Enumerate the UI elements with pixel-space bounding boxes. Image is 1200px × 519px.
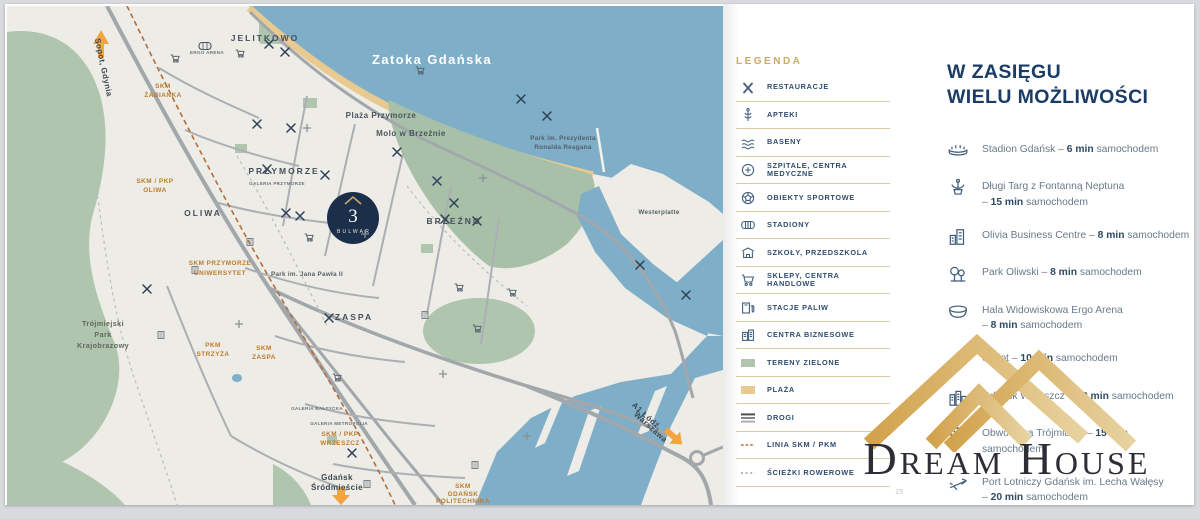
poi-item-text: Olivia Business Centre – 8 min samochode… — [982, 228, 1189, 243]
skm-line-swatch — [740, 437, 756, 453]
map-panel: 3 BULWAR Zatoka GdańskaPlaża PrzymorzeMo… — [7, 6, 723, 505]
poi-tpk-3: Krajobrazowy — [77, 341, 129, 350]
station-zabianka-1: SKM — [155, 83, 171, 90]
district-zaspa: ZASPA — [335, 312, 373, 322]
bike-line-swatch — [740, 465, 756, 481]
legend-item: SZPITALE, CENTRA MEDYCZNE — [736, 157, 890, 185]
roads-swatch — [740, 410, 756, 426]
city-icon — [947, 387, 969, 409]
interchange-icon — [947, 424, 969, 446]
sport-icon — [740, 190, 756, 206]
station-strzyza-1: PKM — [205, 342, 221, 349]
arena-icon — [947, 301, 969, 323]
pier-icon — [947, 349, 969, 371]
station-oliwa-1: SKM / PKP — [136, 178, 173, 185]
poi-item-text: Obwodnica Trójmiasta – 15 min samochodem — [982, 426, 1190, 457]
city-icon — [947, 387, 969, 409]
legend-item: LINIA SKM / PKM — [736, 432, 890, 460]
park-icon — [947, 263, 969, 285]
legend-item: SZKOŁY, PRZEDSZKOLA — [736, 239, 890, 267]
offices-icon — [947, 226, 969, 248]
sport-icon — [740, 190, 756, 206]
caduceus-icon — [740, 107, 756, 123]
legend-item-label: DROGI — [767, 414, 794, 422]
poi-park-reagana-2: Ronalda Reagana — [534, 144, 592, 151]
park-icon — [947, 263, 969, 285]
legend-title: LEGENDA — [736, 56, 890, 67]
legend-item-label: BASENY — [767, 138, 802, 146]
school-icon — [740, 245, 756, 261]
poi-item: Sopot – 10 min samochodem — [947, 351, 1190, 371]
poi-park-jana-pawla: Park im. Jana Pawła II — [271, 271, 343, 278]
legend-item-label: PLAŻA — [767, 386, 795, 394]
medical-icon — [740, 162, 756, 178]
poi-item-text: Sopot – 10 min samochodem — [982, 351, 1118, 366]
development-number: 3 — [348, 206, 358, 227]
legend-item-label: OBIEKTY SPORTOWE — [767, 194, 855, 202]
station-zaspa-1: SKM — [256, 345, 272, 352]
cart-icon — [740, 272, 756, 288]
medical-icon — [740, 162, 756, 178]
legend-item: STADIONY — [736, 212, 890, 240]
station-wrzeszcz-2: WRZESZCZ — [320, 440, 360, 447]
stadium-icon — [740, 217, 756, 233]
poi-westerplatte: Westerplatte — [638, 209, 679, 216]
legend-items: RESTAURACJEAPTEKIBASENYSZPITALE, CENTRA … — [736, 74, 890, 487]
beach-swatch — [740, 382, 756, 398]
poi-item: Park Oliwski – 8 min samochodem — [947, 265, 1190, 285]
development-marker: 3 BULWAR — [327, 192, 379, 244]
station-strzyza-2: STRZYŻA — [197, 349, 230, 358]
legend-item: CENTRA BIZNESOWE — [736, 322, 890, 350]
bike-line-swatch — [740, 465, 756, 481]
poi-item: Długi Targ z Fontanną Neptuna– 15 min sa… — [947, 179, 1190, 210]
roads-swatch — [740, 410, 756, 426]
poi-park-reagana: Park im. Prezydenta — [530, 135, 596, 142]
poi-tpk-2: Park — [94, 330, 111, 339]
poi-item: Hala Widowiskowa Ergo Arena– 8 min samoc… — [947, 303, 1190, 334]
poi-title-line1: W ZASIĘGU — [947, 60, 1190, 85]
fountain-icon — [947, 177, 969, 199]
poi-item: Gdańsk Wrzeszcz – 10 min samochodem — [947, 389, 1190, 409]
arena-icon — [947, 301, 969, 323]
station-zaspa-2: ZASPA — [252, 354, 276, 361]
legend-item: RESTAURACJE — [736, 74, 890, 102]
poi-galeria-baltycka: GALERIA BAŁTYCKA — [291, 406, 343, 411]
poi-item: Obwodnica Trójmiasta – 15 min samochodem — [947, 426, 1190, 457]
plane-icon — [947, 473, 969, 495]
pool-icon — [740, 135, 756, 151]
page-number: 15 — [889, 489, 909, 496]
beach-label: Plaża Przymorze — [346, 111, 417, 120]
pond — [232, 374, 242, 382]
plane-icon — [947, 473, 969, 495]
district-brzezno: BRZEŹNO — [426, 216, 481, 226]
legend-item: DROGI — [736, 404, 890, 432]
legend-item-label: RESTAURACJE — [767, 83, 829, 91]
page: 3 BULWAR Zatoka GdańskaPlaża PrzymorzeMo… — [5, 4, 1194, 505]
legend-item-label: LINIA SKM / PKM — [767, 441, 837, 449]
station-politechnika-1: SKM — [455, 483, 471, 490]
legend-item: OBIEKTY SPORTOWE — [736, 184, 890, 212]
legend-item-label: CENTRA BIZNESOWE — [767, 331, 855, 339]
legend-item: PLAŻA — [736, 377, 890, 405]
fountain-icon — [947, 177, 969, 199]
legend-item: ŚCIEŻKI ROWEROWE — [736, 459, 890, 487]
school-icon — [740, 245, 756, 261]
business-icon — [740, 327, 756, 343]
legend-item: SKLEPY, CENTRA HANDLOWE — [736, 267, 890, 295]
sea-label: Zatoka Gdańska — [372, 52, 492, 67]
pier-icon — [947, 349, 969, 371]
district-przymorze: PRZYMORZE — [248, 166, 319, 176]
fuel-icon — [740, 300, 756, 316]
pier-label: Molo w Brzeźnie — [376, 129, 446, 138]
station-uniwersytet-1: SKM PRZYMORZE — [189, 260, 252, 267]
legend-item: STACJE PALIW — [736, 294, 890, 322]
cart-icon — [740, 272, 756, 288]
poi-item-text: Stadion Gdańsk – 6 min samochodem — [982, 142, 1158, 157]
beach-swatch — [740, 382, 756, 398]
city-map: 3 BULWAR Zatoka GdańskaPlaża PrzymorzeMo… — [7, 6, 723, 505]
poi-item-text: Port Lotniczy Gdańsk im. Lecha Wałęsy– 2… — [982, 475, 1164, 506]
station-uniwersytet-2: UNIWERSYTET — [194, 270, 246, 277]
legend-item-label: STACJE PALIW — [767, 304, 829, 312]
legend-item-label: APTEKI — [767, 111, 798, 119]
station-politechnika-3: POLITECHNIKA — [436, 498, 490, 505]
poi-item-text: Gdańsk Wrzeszcz – 10 min samochodem — [982, 389, 1174, 404]
legend-item-label: STADIONY — [767, 221, 810, 229]
legend-item-label: SZPITALE, CENTRA MEDYCZNE — [767, 162, 890, 178]
legend-item-label: SKLEPY, CENTRA HANDLOWE — [767, 272, 890, 288]
station-oliwa-2: OLIWA — [143, 187, 166, 194]
poi-title-line2: WIELU MOŻLIWOŚCI — [947, 85, 1190, 110]
stadium-icon — [740, 217, 756, 233]
stadium-arena-icon — [947, 140, 969, 162]
legend-panel: LEGENDA RESTAURACJEAPTEKIBASENYSZPITALE,… — [736, 56, 890, 487]
legend-item-label: SZKOŁY, PRZEDSZKOLA — [767, 249, 868, 257]
cutlery-icon — [740, 80, 756, 96]
station-wrzeszcz-1: SKM / PKP — [321, 431, 358, 438]
pool-icon — [740, 135, 756, 151]
business-icon — [740, 327, 756, 343]
green-swatch — [740, 355, 756, 371]
poi-tpk-1: Trójmiejski — [82, 319, 124, 328]
legend-item-label: TERENY ZIELONE — [767, 359, 840, 367]
offices-icon — [947, 226, 969, 248]
district-oliwa: OLIWA — [184, 208, 222, 218]
station-politechnika-2: GDAŃSK — [448, 489, 479, 498]
poi-panel: W ZASIĘGU WIELU MOŻLIWOŚCI Stadion Gdańs… — [947, 60, 1190, 519]
poi-ergo-arena: ERGO ARENA — [190, 50, 224, 55]
poi-item-text: Park Oliwski – 8 min samochodem — [982, 265, 1142, 280]
poi-item: Port Lotniczy Gdańsk im. Lecha Wałęsy– 2… — [947, 475, 1190, 506]
poi-galeria-przymorze: GALERIA PRZYMORZE — [249, 181, 305, 186]
poi-title: W ZASIĘGU WIELU MOŻLIWOŚCI — [947, 60, 1190, 110]
brochure-spread: 3 BULWAR Zatoka GdańskaPlaża PrzymorzeMo… — [0, 0, 1200, 519]
district-jelitkowo: JELITKOWO — [231, 33, 300, 43]
label-srodmiescie-2: Śródmieście — [311, 483, 363, 492]
skm-line-swatch — [740, 437, 756, 453]
station-zabianka-2: ŻABIANKA — [144, 90, 181, 99]
legend-item: TERENY ZIELONE — [736, 349, 890, 377]
poi-item: Stadion Gdańsk – 6 min samochodem — [947, 142, 1190, 162]
green-swatch — [740, 355, 756, 371]
poi-list: Stadion Gdańsk – 6 min samochodemDługi T… — [947, 142, 1190, 506]
caduceus-icon — [740, 107, 756, 123]
stadium-arena-icon — [947, 140, 969, 162]
poi-galeria-metropolia: GALERIA METROPOLIA — [310, 421, 368, 426]
interchange-icon — [947, 424, 969, 446]
label-srodmiescie-1: Gdańsk — [321, 473, 353, 482]
poi-item: Olivia Business Centre – 8 min samochode… — [947, 228, 1190, 248]
poi-item-text: Hala Widowiskowa Ergo Arena– 8 min samoc… — [982, 303, 1123, 334]
legend-item-label: ŚCIEŻKI ROWEROWE — [767, 469, 854, 477]
poi-item-text: Długi Targ z Fontanną Neptuna– 15 min sa… — [982, 179, 1124, 210]
legend-item: BASENY — [736, 129, 890, 157]
fuel-icon — [740, 300, 756, 316]
cutlery-icon — [740, 80, 756, 96]
legend-item: APTEKI — [736, 102, 890, 130]
